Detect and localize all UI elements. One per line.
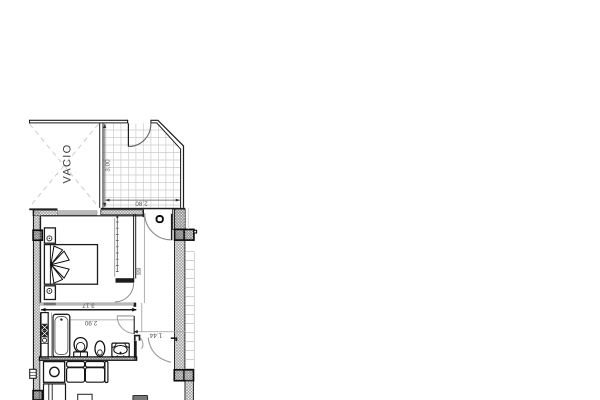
svg-text:3.17: 3.17 (82, 302, 95, 309)
svg-text:2.90: 2.90 (84, 319, 97, 326)
svg-text:3.00: 3.00 (104, 159, 111, 172)
svg-text:2.80: 2.80 (135, 200, 148, 207)
svg-text:VACIO: VACIO (61, 144, 73, 184)
svg-text:1.44: 1.44 (149, 332, 162, 339)
